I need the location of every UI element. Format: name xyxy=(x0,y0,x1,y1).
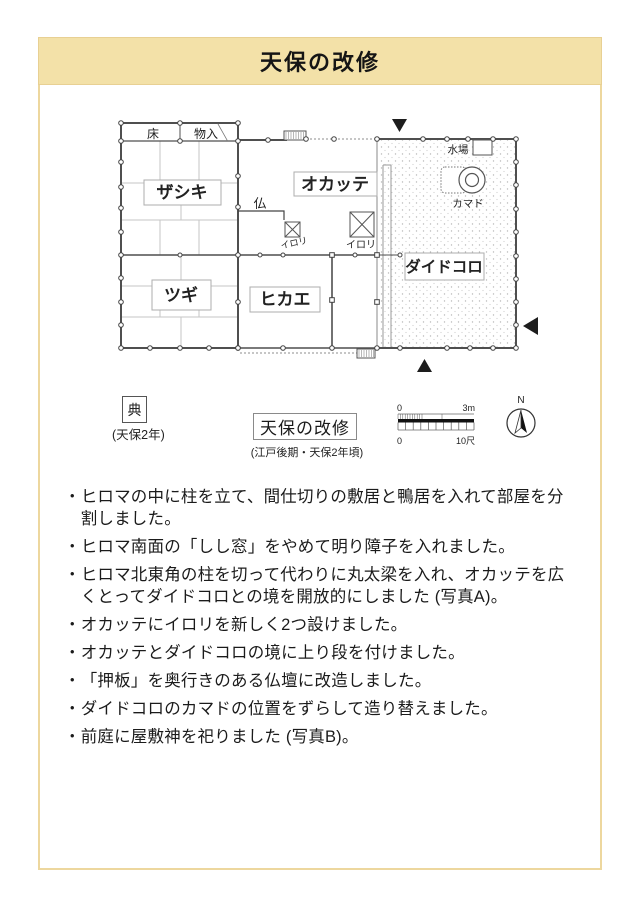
list-item: ・ オカッテにイロリを新しく2つ設けました。 xyxy=(64,614,572,636)
note-text: オカッテとダイドコロの境に上り段を付けました。 xyxy=(81,642,572,664)
bullet-marker: ・ xyxy=(64,642,81,664)
note-text: ダイドコロのカマドの位置をずらして造り替えました。 xyxy=(81,698,572,720)
compass-n-label: N xyxy=(517,395,524,406)
room-label-okatte: オカッテ xyxy=(301,175,369,194)
dating-mark-caption: (天保2年) xyxy=(112,424,165,443)
scale-top-left-label: 0 xyxy=(397,403,402,413)
label-toko: 床 xyxy=(147,127,159,141)
plan-name-box: 天保の改修 xyxy=(253,413,357,440)
east-arrow-marker xyxy=(523,317,538,335)
list-item: ・ ヒロマ南面の「しし窓」をやめて明り障子を入れました。 xyxy=(64,536,572,558)
kamado-symbol xyxy=(441,167,485,193)
scale-top-right-label: 3m xyxy=(462,403,475,413)
list-item: ・ 前庭に屋敷神を祀りました (写真B)。 xyxy=(64,726,572,748)
label-irori-small: イロリ xyxy=(280,235,309,250)
room-label-zashiki: ザシキ xyxy=(157,183,208,202)
mizuba-symbol xyxy=(473,140,492,155)
room-label-hikae: ヒカエ xyxy=(260,290,311,309)
entrance-step-top xyxy=(284,131,306,140)
renovation-notes-list: ・ ヒロマの中に柱を立て、間仕切りの敷居と鴨居を入れて部屋を分割しました。 ・ … xyxy=(64,486,572,754)
scale-bottom-left-label: 0 xyxy=(397,436,402,446)
dating-mark-box: 典 xyxy=(122,396,147,423)
compass-needle-light xyxy=(515,410,521,433)
compass-needle-dark xyxy=(521,410,527,433)
irori-large-symbol xyxy=(350,212,374,237)
bullet-marker: ・ xyxy=(64,564,81,608)
floor-plan: ザシキ オカッテ ツギ ヒカエ ダイドコロ 床 物入 仏 イロリ イロリ 水場 … xyxy=(100,110,560,380)
bullet-marker: ・ xyxy=(64,670,81,692)
note-text: 「押板」を奥行きのある仏壇に改造しました。 xyxy=(81,670,572,692)
page: 天保の改修 xyxy=(0,0,640,906)
note-text: ヒロマ北東角の柱を切って代わりに丸太梁を入れ、オカッテを広くとってダイドコロとの… xyxy=(81,564,572,608)
bullet-marker: ・ xyxy=(64,698,81,720)
note-text: オカッテにイロリを新しく2つ設けました。 xyxy=(81,614,572,636)
note-text: ヒロマの中に柱を立て、間仕切りの敷居と鴨居を入れて部屋を分割しました。 xyxy=(81,486,572,530)
bullet-marker: ・ xyxy=(64,486,81,530)
list-item: ・ オカッテとダイドコロの境に上り段を付けました。 xyxy=(64,642,572,664)
scale-bar: 0 3m 0 10尺 xyxy=(394,399,486,449)
title-bar: 天保の改修 xyxy=(38,37,602,85)
scale-bottom-right-label: 10尺 xyxy=(456,436,475,446)
bullet-marker: ・ xyxy=(64,536,81,558)
note-text: 前庭に屋敷神を祀りました (写真B)。 xyxy=(81,726,572,748)
label-butsu: 仏 xyxy=(253,196,266,211)
bullet-marker: ・ xyxy=(64,726,81,748)
tatami-lines xyxy=(121,141,238,348)
room-label-daidokoro: ダイドコロ xyxy=(405,257,483,276)
note-text: ヒロマ南面の「しし窓」をやめて明り障子を入れました。 xyxy=(81,536,572,558)
butsudan-outline xyxy=(238,211,284,220)
compass: N xyxy=(499,392,543,446)
list-item: ・ ヒロマの中に柱を立て、間仕切りの敷居と鴨居を入れて部屋を分割しました。 xyxy=(64,486,572,530)
entrance-step-bottom xyxy=(357,349,375,358)
north-arrow-marker xyxy=(392,119,407,132)
room-label-tsugi: ツギ xyxy=(164,286,198,305)
list-item: ・ 「押板」を奥行きのある仏壇に改造しました。 xyxy=(64,670,572,692)
plan-name-label: 天保の改修 xyxy=(260,414,350,439)
label-mizuba: 水場 xyxy=(448,143,469,156)
irori-small-symbol xyxy=(285,222,300,237)
south-arrow-marker xyxy=(417,359,432,372)
page-title: 天保の改修 xyxy=(260,45,380,77)
label-monoire: 物入 xyxy=(194,127,218,141)
list-item: ・ ダイドコロのカマドの位置をずらして造り替えました。 xyxy=(64,698,572,720)
wall-posts-square xyxy=(330,253,380,305)
dating-mark-char: 典 xyxy=(128,400,142,420)
label-kamado: カマド xyxy=(452,198,484,210)
list-item: ・ ヒロマ北東角の柱を切って代わりに丸太梁を入れ、オカッテを広くとってダイドコロ… xyxy=(64,564,572,608)
plan-name-caption: (江戸後期・天保2年頃) xyxy=(237,444,377,460)
bullet-marker: ・ xyxy=(64,614,81,636)
label-irori-large: イロリ xyxy=(346,240,376,251)
